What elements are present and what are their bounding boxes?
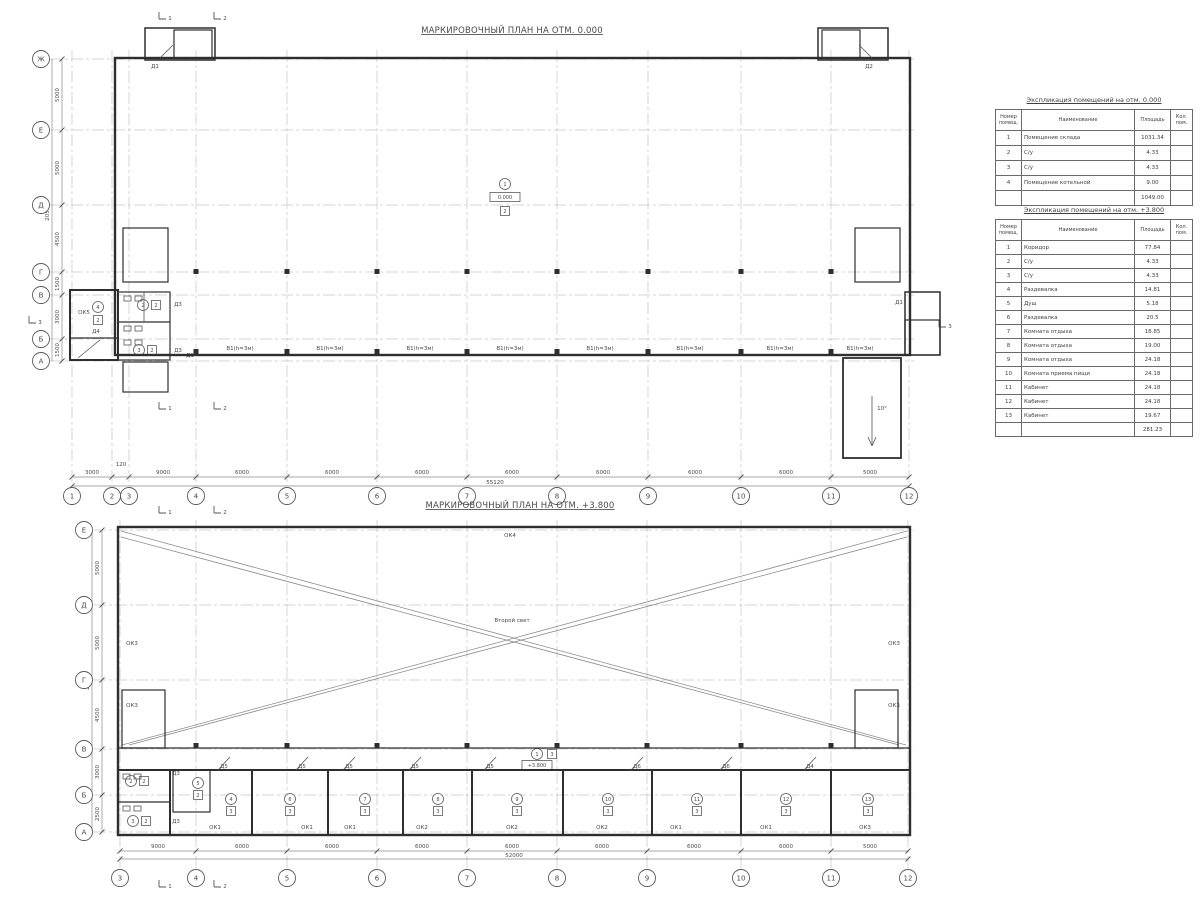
column-mark — [375, 269, 380, 274]
room-number-cell: 7 — [996, 325, 1022, 339]
area-class-label: 3 — [784, 809, 787, 815]
column-mark — [375, 743, 380, 748]
grid-bubble-label: 5 — [285, 875, 289, 883]
total-area-cell: 1049.00 — [1135, 191, 1171, 206]
room-number-cell: 2 — [996, 146, 1022, 161]
explication-table-0000: Экспликация помещений на отм. 0.000 Номе… — [995, 96, 1193, 206]
dim-label: 5000 — [863, 470, 877, 476]
grid-bubble-label: 11 — [827, 493, 836, 501]
empty-cell — [1022, 191, 1135, 206]
dim-label: 6000 — [235, 844, 249, 850]
grid-bubble-label: А — [39, 358, 44, 366]
area-class-label: 3 — [606, 809, 609, 815]
room-count-cell — [1171, 367, 1193, 381]
room-number-cell: 6 — [996, 311, 1022, 325]
column-mark — [829, 269, 834, 274]
column-mark — [465, 349, 470, 354]
window-label: В1(h=3м) — [676, 346, 703, 352]
room-number-label: 13 — [865, 797, 871, 803]
room-partitions — [170, 770, 831, 835]
column-mark — [645, 743, 650, 748]
col-header-number: Номер помещ. — [996, 220, 1022, 241]
grid-bubble-label: 4 — [194, 875, 199, 883]
dim-label: 6000 — [595, 844, 609, 850]
dim-label: 6000 — [505, 844, 519, 850]
room-number-label: 2 — [129, 779, 132, 785]
room-count-cell — [1171, 241, 1193, 255]
column-mark — [194, 743, 199, 748]
window-label: ОК1 — [670, 825, 682, 831]
room-number-cell: 4 — [996, 176, 1022, 191]
table-title: Экспликация помещений на отм. 0.000 — [995, 96, 1193, 104]
dim-total-label: 52000 — [505, 853, 523, 859]
stair-flight — [174, 30, 212, 58]
section-mark-flag — [159, 12, 166, 19]
room-number-label: 10 — [605, 797, 611, 803]
grid-bubble-label: 11 — [827, 875, 836, 883]
window-label: ОК1 — [344, 825, 356, 831]
room-number-cell: 1 — [996, 241, 1022, 255]
area-class-label: 2 — [196, 793, 199, 799]
dim-label: 6000 — [596, 470, 610, 476]
section-mark-label: 1 — [168, 510, 172, 516]
room-number-label: 8 — [436, 797, 439, 803]
column-mark — [465, 743, 470, 748]
column-mark — [646, 269, 651, 274]
section-mark-label: 2 — [223, 16, 227, 22]
room-area-cell: 77.84 — [1135, 241, 1171, 255]
col-header-area: Площадь — [1135, 110, 1171, 131]
column-mark — [285, 349, 290, 354]
room-name-cell: Кабинет — [1022, 409, 1135, 423]
window-label: В1(h=3м) — [496, 346, 523, 352]
section-mark-flag — [214, 12, 221, 19]
grid-bubble-label: Б — [82, 792, 87, 800]
room-name-cell: С/у — [1022, 146, 1135, 161]
table-row: 10 Комната приема пищи 24.18 — [996, 367, 1193, 381]
annotation-label: 10° — [877, 406, 887, 412]
section-mark-flag — [159, 506, 166, 513]
area-class-label: 2 — [142, 779, 145, 785]
area-class-label: 3 — [550, 752, 553, 758]
area-class-label: 3 — [436, 809, 439, 815]
room-number-cell: 9 — [996, 353, 1022, 367]
door-leaf — [78, 340, 100, 358]
grid-bubble-label: 6 — [375, 875, 380, 883]
table-header-row: Номер помещ. Наименование Площадь Кол. п… — [996, 220, 1193, 241]
table-row: 12 Кабинет 24.18 — [996, 395, 1193, 409]
section-mark-label: 1 — [168, 16, 172, 22]
room-area-cell: 24.18 — [1135, 395, 1171, 409]
area-class-label: 3 — [866, 809, 869, 815]
grid-bubble-label: Ж — [37, 56, 45, 64]
section-mark-label: 2 — [223, 406, 227, 412]
room-count-cell — [1171, 395, 1193, 409]
window-label: ОК3 — [859, 825, 871, 831]
area-class-label: 2 — [503, 209, 506, 215]
annotation-label: Д3 — [174, 348, 182, 354]
col-header-count: Кол. пом. — [1171, 110, 1193, 131]
dim-label: 4500 — [55, 232, 61, 246]
column-mark — [829, 743, 834, 748]
room-count-cell — [1171, 161, 1193, 176]
room-count-cell — [1171, 269, 1193, 283]
room-count-cell — [1171, 255, 1193, 269]
column-mark — [829, 349, 834, 354]
window-label: В1(h=3м) — [846, 346, 873, 352]
room-number-cell: 13 — [996, 409, 1022, 423]
room-number-cell: 3 — [996, 269, 1022, 283]
room-name-cell: С/у — [1022, 255, 1135, 269]
stair-flight — [123, 228, 168, 282]
annotation-label: ОК3 — [888, 641, 900, 647]
room-area-cell: 19.00 — [1135, 339, 1171, 353]
col-header-name: Наименование — [1022, 220, 1135, 241]
grid-bubble-label: 1 — [70, 493, 74, 501]
grid-bubble-label: 9 — [645, 875, 649, 883]
table-row: 6 Раздевалка 20.5 — [996, 311, 1193, 325]
grid-bubble-label: Д — [81, 602, 87, 610]
dim-label: 5000 — [55, 88, 61, 102]
room-name-cell: Комната отдыха — [1022, 353, 1135, 367]
dim-label: 6000 — [779, 470, 793, 476]
wc-fixture — [123, 806, 130, 811]
wc-fixture — [124, 340, 131, 345]
col-header-area: Площадь — [1135, 220, 1171, 241]
dim-label: 9000 — [151, 844, 165, 850]
dim-label: 1500 — [55, 343, 61, 357]
dim-label: 6000 — [235, 470, 249, 476]
plan0-structure — [70, 28, 940, 458]
col-header-count: Кол. пом. — [1171, 220, 1193, 241]
dim-label: 6000 — [505, 470, 519, 476]
area-class-label: 2 — [96, 318, 99, 324]
annotation-label: Д2 — [865, 64, 873, 70]
room-name-cell: Раздевалка — [1022, 283, 1135, 297]
window-label: В1(h=3м) — [406, 346, 433, 352]
annotation-label: ОК3 — [126, 641, 138, 647]
room-number-cell: 2 — [996, 255, 1022, 269]
table-row: 4 Раздевалка 14.81 — [996, 283, 1193, 297]
column-mark — [465, 269, 470, 274]
table-row: 5 Душ 5.18 — [996, 297, 1193, 311]
dim-label: 5000 — [863, 844, 877, 850]
room-count-cell — [1171, 409, 1193, 423]
annotation-label: ОК4 — [504, 533, 516, 539]
grid-bubble-label: 10 — [737, 875, 746, 883]
room-area-cell: 4.33 — [1135, 161, 1171, 176]
col-header-name: Наименование — [1022, 110, 1135, 131]
room-name-cell: Помещение котельной — [1022, 176, 1135, 191]
dim-label: 6000 — [688, 470, 702, 476]
room-count-cell — [1171, 325, 1193, 339]
section-mark-flag — [29, 316, 36, 323]
grid-bubble-label: 2 — [110, 493, 114, 501]
room-area-cell: 24.18 — [1135, 367, 1171, 381]
section-mark-flag — [214, 880, 221, 887]
room-name-cell: Раздевалка — [1022, 311, 1135, 325]
room-count-cell — [1171, 297, 1193, 311]
area-class-label: 2 — [154, 303, 157, 309]
section-mark-label: 1 — [168, 884, 172, 890]
dim-label: 6000 — [687, 844, 701, 850]
room-name-cell: Помещение склада — [1022, 131, 1135, 146]
column-mark — [555, 743, 560, 748]
plan1-structure — [118, 527, 910, 835]
wc-fixture — [134, 806, 141, 811]
room-number-label: 1 — [535, 752, 538, 758]
room-area-cell: 4.33 — [1135, 255, 1171, 269]
room-number-label: 12 — [783, 797, 789, 803]
grid-bubble-label: Г — [82, 677, 86, 685]
room-count-cell — [1171, 339, 1193, 353]
dim-label: 6000 — [779, 844, 793, 850]
room-area-cell: 20.5 — [1135, 311, 1171, 325]
window-label: ОК1 — [760, 825, 772, 831]
room-area-cell: 18.85 — [1135, 325, 1171, 339]
dim-label: 6000 — [325, 844, 339, 850]
area-class-label: 3 — [695, 809, 698, 815]
table-total-row: 1049.00 — [996, 191, 1193, 206]
dim-label: 5000 — [55, 161, 61, 175]
grid-bubble-label: 3 — [127, 493, 131, 501]
dim-label: 120 — [116, 462, 127, 468]
table-row: 7 Комната отдыха 18.85 — [996, 325, 1193, 339]
grid-bubble-label: 12 — [904, 875, 913, 883]
col-header-number: Номер помещ. — [996, 110, 1022, 131]
annotation-label: Д3 — [172, 819, 180, 825]
grid-bubble-label: 6 — [375, 493, 380, 501]
column-mark — [194, 269, 199, 274]
section-mark-label: 1 — [168, 406, 172, 412]
room-area-cell: 9.00 — [1135, 176, 1171, 191]
ramp-arrow — [868, 396, 876, 446]
grid-bubble-label: 7 — [465, 493, 469, 501]
dim-label: 6000 — [415, 844, 429, 850]
total-area-cell: 281.23 — [1135, 423, 1171, 437]
window-label: ОК1 — [209, 825, 221, 831]
column-mark — [739, 349, 744, 354]
room-count-cell — [1171, 353, 1193, 367]
grid-bubble-label: 12 — [905, 493, 914, 501]
section-mark-flag — [159, 880, 166, 887]
window-label: ОК2 — [416, 825, 428, 831]
room-name-cell: Коридор — [1022, 241, 1135, 255]
room-count-cell — [1171, 131, 1193, 146]
room-count-cell — [1171, 176, 1193, 191]
room-name-cell: С/у — [1022, 161, 1135, 176]
room-number-label: 4 — [229, 797, 232, 803]
area-class-label: 2 — [144, 819, 147, 825]
room-area-cell: 4.33 — [1135, 146, 1171, 161]
room-area-cell: 19.67 — [1135, 409, 1171, 423]
empty-cell — [1171, 191, 1193, 206]
room-number-label: 3 — [131, 819, 134, 825]
plan0-title: МАРКИРОВОЧНЫЙ ПЛАН НА ОТМ. 0.000 — [421, 24, 603, 36]
window-label: ОК1 — [301, 825, 313, 831]
column-mark — [646, 349, 651, 354]
dim-label: 4500 — [95, 708, 101, 722]
room-number-cell: 5 — [996, 297, 1022, 311]
room-area-cell: 24.18 — [1135, 353, 1171, 367]
dim-label: 3000 — [85, 470, 99, 476]
column-mark — [739, 743, 744, 748]
room-number-cell: 4 — [996, 283, 1022, 297]
room-number-label: 3 — [137, 348, 140, 354]
room-number-cell: 1 — [996, 131, 1022, 146]
annotation-label: Д4 — [92, 329, 100, 335]
room-number-cell: 3 — [996, 161, 1022, 176]
table-row: 3 С/у 4.33 — [996, 269, 1193, 283]
table-row: 8 Комната отдыха 19.00 — [996, 339, 1193, 353]
section-mark-label: 2 — [223, 510, 227, 516]
window-label: В1(h=3м) — [226, 346, 253, 352]
table-row: 3 С/у 4.33 — [996, 161, 1193, 176]
table-row: 11 Кабинет 24.18 — [996, 381, 1193, 395]
area-class-label: 2 — [150, 348, 153, 354]
column-mark — [375, 349, 380, 354]
room-area-cell: 5.18 — [1135, 297, 1171, 311]
door-leaf — [160, 45, 173, 58]
room-name-cell: Комната приема пищи — [1022, 367, 1135, 381]
explication-table: Номер помещ. Наименование Площадь Кол. п… — [995, 109, 1193, 206]
area-class-label: 3 — [229, 809, 232, 815]
room-number-cell: 11 — [996, 381, 1022, 395]
annotation-label: Д1 — [895, 300, 903, 306]
dim-label: 5000 — [95, 561, 101, 575]
table-header-row: Номер помещ. Наименование Площадь Кол. п… — [996, 110, 1193, 131]
grid-bubble-label: Д — [38, 202, 44, 210]
room-number-label: 1 — [503, 182, 506, 188]
stair-flight — [855, 228, 900, 282]
grid-bubble-label: Е — [82, 527, 86, 535]
room-count-cell — [1171, 381, 1193, 395]
table-row: 1 Помещение склада 1031.34 — [996, 131, 1193, 146]
room-number-cell: 12 — [996, 395, 1022, 409]
area-class-label: 3 — [288, 809, 291, 815]
dim-total-label: 55120 — [486, 480, 504, 486]
section-mark-flag — [214, 402, 221, 409]
dim-label: 2500 — [95, 807, 101, 821]
room-name-cell: С/у — [1022, 269, 1135, 283]
wc-fixture — [124, 296, 131, 301]
dim-label: 6000 — [325, 470, 339, 476]
table-row: 4 Помещение котельной 9.00 — [996, 176, 1193, 191]
window-label: ОК2 — [506, 825, 518, 831]
stair-flight — [822, 30, 860, 58]
grid-bubble-label: В — [82, 746, 87, 754]
room-number-label: 6 — [288, 797, 291, 803]
section-mark-flag — [159, 402, 166, 409]
room-number-label: 5 — [196, 781, 199, 787]
window-label: В1(h=3м) — [316, 346, 343, 352]
room-area-cell: 1031.34 — [1135, 131, 1171, 146]
room-number-cell: 10 — [996, 367, 1022, 381]
dim-label: 5000 — [95, 636, 101, 650]
wc-fixture — [135, 326, 142, 331]
room-number-label: 11 — [694, 797, 700, 803]
dim-label: 1500 — [55, 277, 61, 291]
table-row: 2 С/у 4.33 — [996, 146, 1193, 161]
grid-bubble-label: В — [39, 292, 44, 300]
annotation-label: Д1 — [151, 64, 159, 70]
room-name-cell: Комната отдыха — [1022, 339, 1135, 353]
room-number-label: 9 — [515, 797, 518, 803]
column-mark — [555, 349, 560, 354]
room-name-cell: Кабинет — [1022, 381, 1135, 395]
room-count-cell — [1171, 146, 1193, 161]
grid-bubble-label: 9 — [646, 493, 650, 501]
column-mark — [739, 269, 744, 274]
empty-cell — [1171, 423, 1193, 437]
table-row: 13 Кабинет 19.67 — [996, 409, 1193, 423]
table-row: 9 Комната отдыха 24.18 — [996, 353, 1193, 367]
room-name-cell: Кабинет — [1022, 395, 1135, 409]
drawing-sheet: 3000120900060006000600060006000600060005… — [0, 0, 1200, 900]
room-area-cell: 14.81 — [1135, 283, 1171, 297]
grid-bubble-label: Г — [39, 269, 43, 277]
column-mark — [555, 269, 560, 274]
room-count-cell — [1171, 311, 1193, 325]
grid-bubble-label: Б — [39, 336, 44, 344]
empty-cell — [996, 423, 1022, 437]
empty-cell — [1022, 423, 1135, 437]
room-number-cell: 8 — [996, 339, 1022, 353]
grid-bubble-label: Е — [39, 127, 43, 135]
annotation-label: ОК5 — [78, 310, 90, 316]
wc-fixture — [124, 326, 131, 331]
grid-bubble-label: 5 — [285, 493, 289, 501]
grid-bubble-label: 7 — [465, 875, 469, 883]
explication-table-3800: Экспликация помещений на отм. +3.800 Ном… — [995, 206, 1193, 437]
dim-label: 6000 — [415, 470, 429, 476]
grid-bubble-label: 4 — [194, 493, 199, 501]
empty-cell — [996, 191, 1022, 206]
dim-label: 3000 — [95, 765, 101, 779]
stair-flight — [123, 362, 168, 392]
section-mark-label: 2 — [223, 884, 227, 890]
column-mark — [285, 743, 290, 748]
explication-table: Номер помещ. Наименование Площадь Кол. п… — [995, 219, 1193, 437]
table-row: 2 С/у 4.33 — [996, 255, 1193, 269]
grid-bubble-label: А — [82, 829, 87, 837]
table-row: 1 Коридор 77.84 — [996, 241, 1193, 255]
window-label: В1(h=3м) — [766, 346, 793, 352]
window-label: ОК2 — [596, 825, 608, 831]
room-area-cell: 24.18 — [1135, 381, 1171, 395]
room-area-cell: 4.33 — [1135, 269, 1171, 283]
room-name-cell: Комната отдыха — [1022, 325, 1135, 339]
section-mark-label: 3 — [948, 324, 952, 330]
void-cross — [121, 531, 907, 745]
window-label: В1(h=3м) — [586, 346, 613, 352]
table-total-row: 281.23 — [996, 423, 1193, 437]
dim-label: 9000 — [156, 470, 170, 476]
area-class-label: 3 — [363, 809, 366, 815]
column-mark — [285, 269, 290, 274]
section-mark-flag — [214, 506, 221, 513]
room-count-cell — [1171, 283, 1193, 297]
door-leaf — [859, 45, 872, 58]
area-class-label: 3 — [515, 809, 518, 815]
grid-bubble-label: 8 — [555, 875, 559, 883]
dim-label: 3000 — [55, 310, 61, 324]
room-name-cell: Душ — [1022, 297, 1135, 311]
plan1-annotations: 9000600060006000600060006000600050005200… — [76, 506, 917, 890]
section-mark-label: 3 — [38, 320, 42, 326]
plan1-title: МАРКИРОВОЧНЫЙ ПЛАН НА ОТМ. +3.800 — [425, 499, 614, 511]
annotation-label: Д3 — [174, 302, 182, 308]
